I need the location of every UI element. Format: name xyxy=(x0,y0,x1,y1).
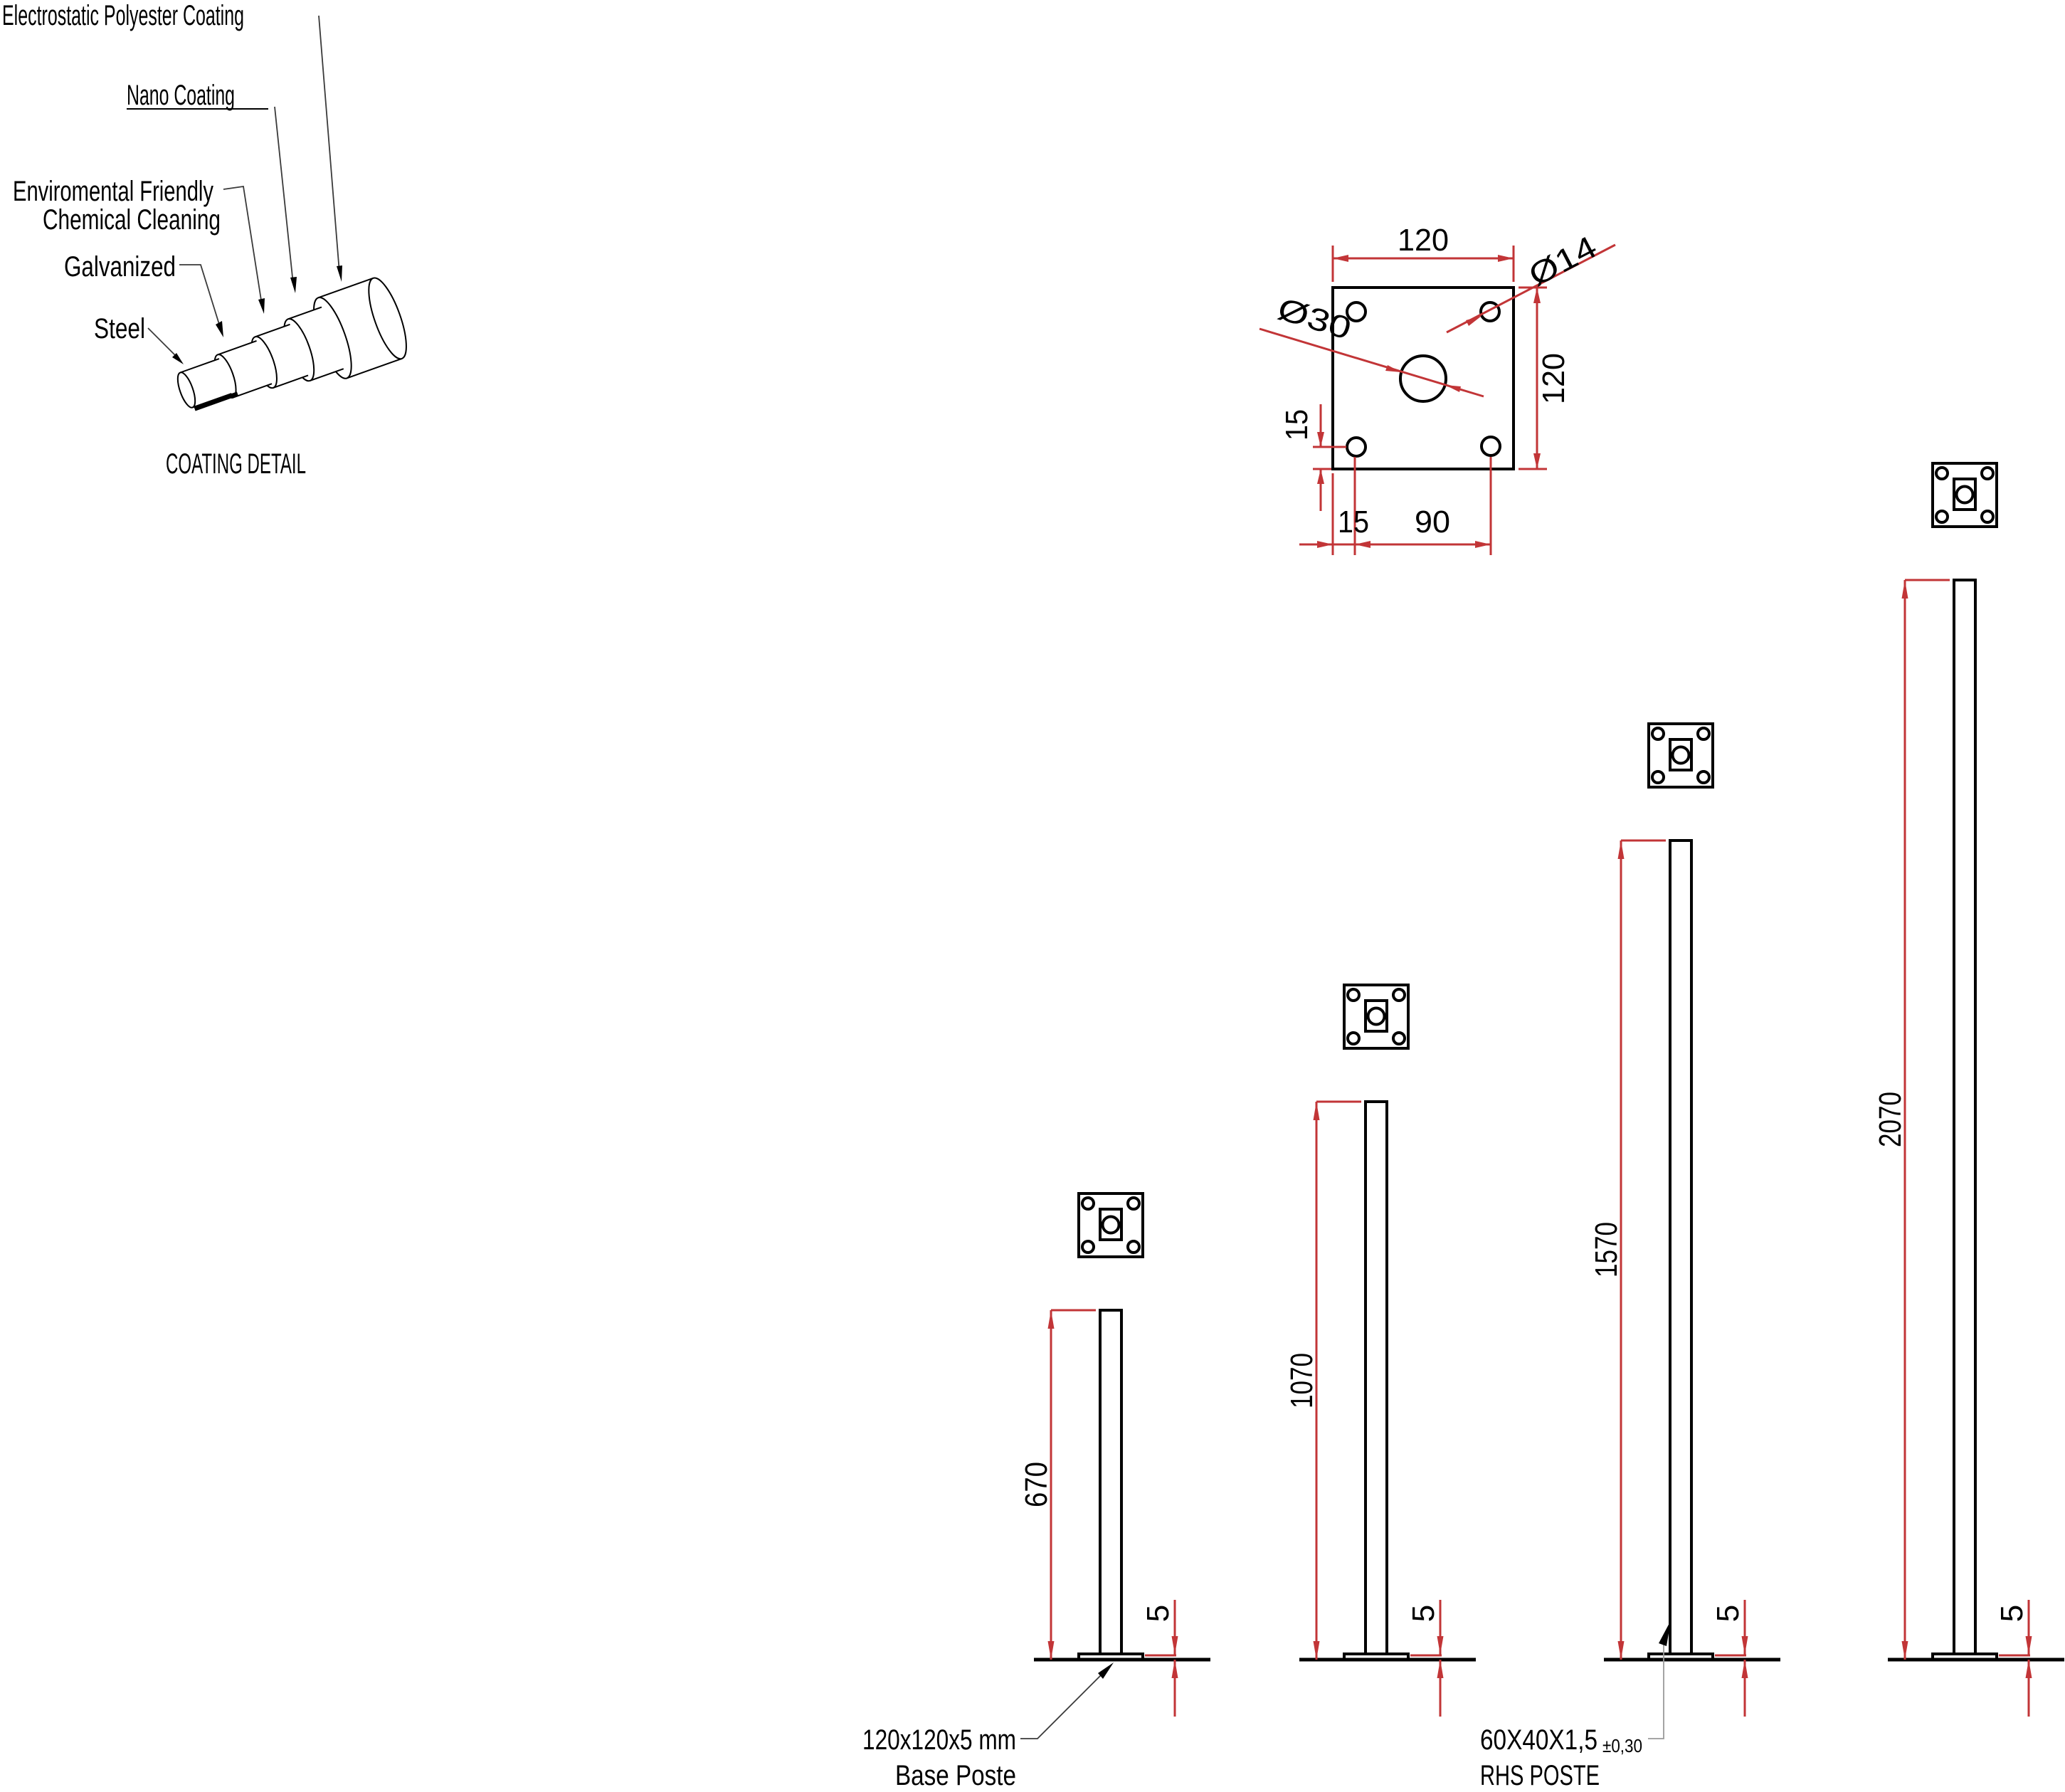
dim-text-base-thickness: 5 xyxy=(1141,1605,1176,1622)
label-electrostatic-polyester-coating: Electrostatic Polyester Coating xyxy=(2,0,244,31)
post-body xyxy=(1100,1310,1121,1654)
dim-text-base-thickness: 5 xyxy=(1995,1605,2029,1622)
dim-post-height: 1570 xyxy=(1589,840,1666,1660)
dim-post-height: 1070 xyxy=(1284,1102,1361,1660)
dim-text-base-thickness: 5 xyxy=(1406,1605,1441,1622)
dim-hole-spacing-bottom: 15 90 xyxy=(1299,457,1491,555)
post-body xyxy=(1366,1102,1387,1654)
coating-detail-title: COATING DETAIL xyxy=(166,448,306,480)
dim-text-post-height: 670 xyxy=(1019,1462,1054,1507)
arrowhead xyxy=(337,265,342,282)
post-top-view-plate xyxy=(1933,463,1997,527)
dim-plate-height: 120 xyxy=(1519,288,1571,469)
dim-post-height: 2070 xyxy=(1873,580,1950,1660)
label-nano-coating: Nano Coating xyxy=(127,80,235,111)
dim-hole-offset-vertical: 15 xyxy=(1279,404,1346,511)
post-module-2070: 2070 5 xyxy=(1873,463,2064,1717)
coating-leader-steel xyxy=(148,328,184,364)
label-chemical-cleaning: Chemical Cleaning xyxy=(43,204,221,236)
post-body xyxy=(1670,840,1691,1654)
dim-text-post-height: 1570 xyxy=(1589,1222,1624,1277)
callout-base-poste: 120x120x5 mm Base Poste xyxy=(862,1662,1114,1791)
drawing-svg: Electrostatic Polyester Coating Nano Coa… xyxy=(0,0,2065,1792)
dim-text-center-hole-diameter: Ø30 xyxy=(1274,291,1356,347)
dim-plate-width: 120 xyxy=(1333,223,1514,282)
callout-rhs-size: 60X40X1,5 xyxy=(1480,1724,1597,1756)
dim-text-offset-vertical: 15 xyxy=(1279,409,1314,441)
callout-base-poste-line2: Base Poste xyxy=(895,1760,1016,1791)
dim-text-height: 120 xyxy=(1536,353,1571,404)
callout-base-poste-line1: 120x120x5 mm xyxy=(862,1724,1016,1756)
post-body xyxy=(1954,580,1975,1654)
dim-text-base-thickness: 5 xyxy=(1711,1605,1746,1622)
arrowhead xyxy=(258,298,265,314)
dim-text-offset-horizontal: 15 xyxy=(1338,505,1369,539)
dim-text-width: 120 xyxy=(1398,223,1449,258)
dim-text-post-height: 2070 xyxy=(1873,1092,1908,1147)
dim-post-height: 670 xyxy=(1019,1310,1096,1660)
dim-text-hole-spacing: 90 xyxy=(1415,505,1450,539)
technical-drawing-sheet: Electrostatic Polyester Coating Nano Coa… xyxy=(0,0,2065,1792)
bolt-hole-bottom-right xyxy=(1482,437,1500,455)
dim-hole-diameter: Ø14 xyxy=(1447,229,1615,332)
arrowhead xyxy=(216,321,223,337)
dim-center-hole-diameter: Ø30 xyxy=(1259,291,1484,396)
bolt-hole-bottom-left xyxy=(1347,438,1366,456)
label-galvanized: Galvanized xyxy=(64,251,176,283)
callout-rhs-line2: RHS POSTE xyxy=(1480,1760,1600,1791)
base-plate-detail-drawing: 120 120 Ø14 Ø30 xyxy=(1259,223,1615,555)
post-module-1070: 1070 5 xyxy=(1284,985,1476,1717)
label-steel: Steel xyxy=(94,313,145,344)
callout-leader-line xyxy=(1648,1635,1664,1739)
callout-rhs-poste: 60X40X1,5 ±0,30 RHS POSTE xyxy=(1480,1620,1671,1791)
post-top-view-plate xyxy=(1079,1193,1143,1257)
label-enviromental-friendly: Enviromental Friendly xyxy=(13,176,213,207)
post-top-view-plate xyxy=(1649,724,1713,787)
bolt-hole-top-right xyxy=(1481,302,1499,321)
post-top-view-plate xyxy=(1344,985,1408,1048)
coating-leader-chemical-cleaning xyxy=(223,186,265,314)
coating-tube-drawing xyxy=(166,274,413,433)
dim-text-hole-diameter: Ø14 xyxy=(1523,229,1602,293)
coating-detail-section: Electrostatic Polyester Coating Nano Coa… xyxy=(2,0,414,480)
post-module-1570: 1570 5 xyxy=(1589,724,1780,1717)
callout-rhs-tolerance: ±0,30 xyxy=(1602,1735,1642,1756)
coating-leader-nano xyxy=(275,107,297,293)
dim-text-post-height: 1070 xyxy=(1284,1353,1319,1408)
coating-leader-galvanized xyxy=(179,265,223,337)
coating-leader-polyester xyxy=(319,16,342,282)
callout-leader-line xyxy=(1020,1666,1110,1739)
post-module-670: 670 5 xyxy=(1019,1193,1210,1717)
arrowhead xyxy=(290,277,297,293)
